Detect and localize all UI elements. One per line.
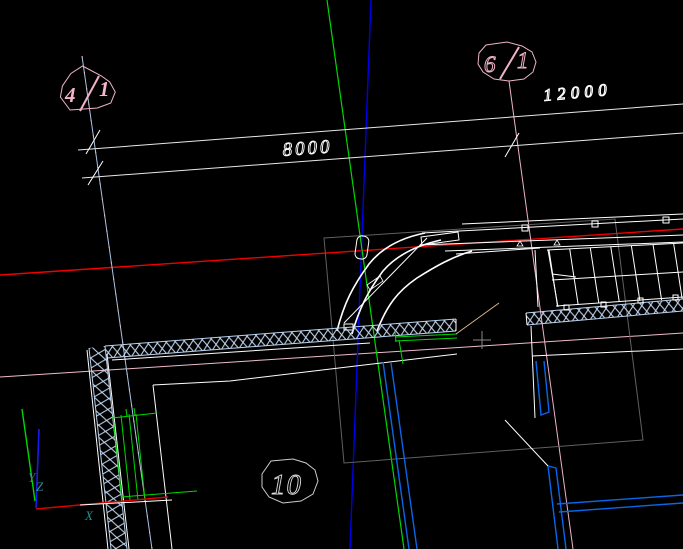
svg-text:10: 10 (271, 469, 302, 501)
svg-text:4: 4 (64, 83, 76, 107)
svg-text:6: 6 (484, 52, 496, 77)
svg-text:1: 1 (99, 77, 110, 101)
svg-text:8000: 8000 (282, 136, 333, 160)
svg-text:X: X (84, 508, 94, 523)
svg-text:1: 1 (517, 48, 529, 73)
svg-text:Z: Z (36, 479, 44, 494)
